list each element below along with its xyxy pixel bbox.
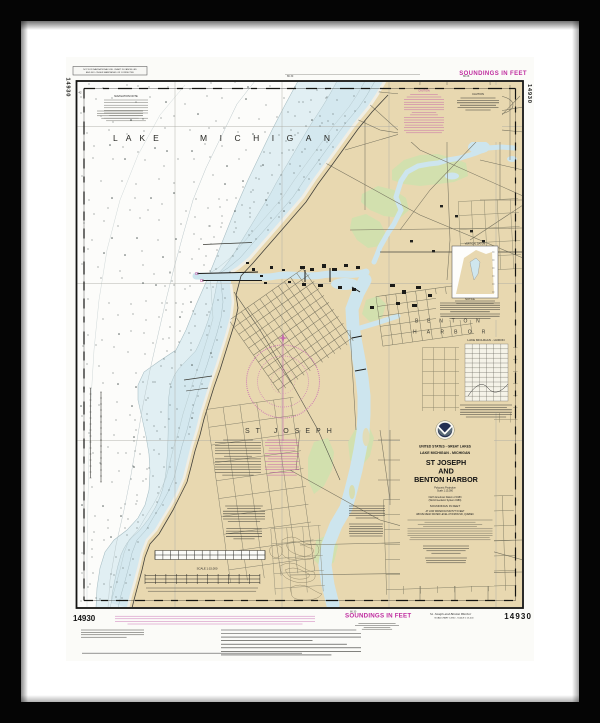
svg-text:UNITED STATES - GREAT LAKES: UNITED STATES - GREAT LAKES [419,445,472,449]
svg-text:AND NO LONGER MAINTAINED OR CO: AND NO LONGER MAINTAINED OR CORRECTED [86,71,135,74]
svg-text:14930: 14930 [504,612,532,621]
svg-text:VERTICAL DATUM: VERTICAL DATUM [465,243,486,246]
svg-text:NAVIGATION NOTE: NAVIGATION NOTE [114,94,138,98]
svg-text:MICHIGAN: MICHIGAN [200,133,343,143]
svg-text:St. Joseph and Benton Harbor: St. Joseph and Benton Harbor [430,612,472,616]
svg-text:86 30: 86 30 [287,75,294,78]
svg-text:AT LOW WATER DATUM 577.5 FEET: AT LOW WATER DATUM 577.5 FEET [426,510,465,513]
svg-text:14930: 14930 [73,614,96,623]
svg-text:CAUTION: CAUTION [418,90,429,93]
svg-text:14930: 14930 [526,84,532,104]
svg-text:NOT FOR NAVIGATIONAL USE. CHAR: NOT FOR NAVIGATIONAL USE. CHART IS CANCE… [83,68,137,71]
svg-text:SCALE 1:15,000: SCALE 1:15,000 [197,567,218,571]
svg-text:14930: 14930 [65,78,71,98]
svg-text:SOUNDINGS IN FEET: SOUNDINGS IN FEET [430,504,461,508]
svg-text:SOUNDINGS IN FEET: SOUNDINGS IN FEET [459,71,527,77]
svg-text:BENTON HARBOR: BENTON HARBOR [414,475,479,484]
svg-text:NOAA CHART 14930 - SCALE 1:15,: NOAA CHART 14930 - SCALE 1:15,000 [434,617,474,620]
svg-text:86 30: 86 30 [350,611,357,614]
svg-text:LAKE MICHIGAN - HURON: LAKE MICHIGAN - HURON [467,338,504,342]
svg-text:ABOVE MEAN WATER LEVEL AT RIMO: ABOVE MEAN WATER LEVEL AT RIMOUSKI, QUEB… [416,513,474,516]
svg-text:LAKE: LAKE [113,133,167,143]
svg-text:LAKE MICHIGAN - MICHIGAN: LAKE MICHIGAN - MICHIGAN [420,451,471,455]
svg-text:SOUNDINGS IN FEET: SOUNDINGS IN FEET [345,613,411,620]
svg-text:(World Geodetic System 1983): (World Geodetic System 1983) [429,499,462,502]
svg-text:BENTON: BENTON [415,319,489,325]
svg-text:CAUTION: CAUTION [472,92,484,96]
svg-text:HARBOR: HARBOR [413,330,496,336]
svg-text:Scale 1:15,000: Scale 1:15,000 [437,490,454,493]
svg-text:ST JOSEPH: ST JOSEPH [245,428,338,435]
